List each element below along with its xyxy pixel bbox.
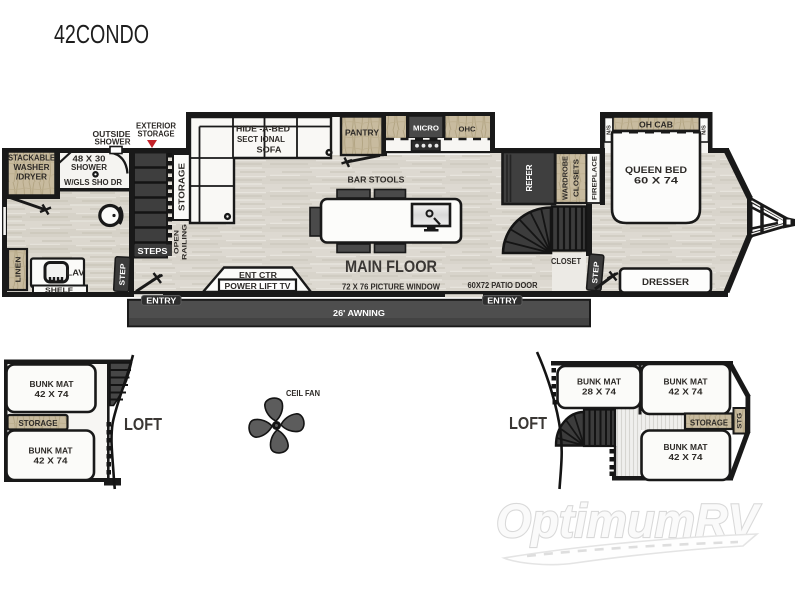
svg-text:28 X 74: 28 X 74	[582, 388, 617, 397]
svg-text:MICRO: MICRO	[413, 124, 439, 133]
svg-text:DRESSER: DRESSER	[642, 277, 689, 288]
svg-text:/DRYER: /DRYER	[16, 173, 47, 182]
svg-text:CLOSET: CLOSET	[551, 257, 581, 266]
svg-text:72 X 76 PICTURE WINDOW: 72 X 76 PICTURE WINDOW	[342, 283, 440, 292]
svg-text:STG: STG	[737, 413, 744, 429]
svg-text:SOFA: SOFA	[257, 145, 282, 155]
svg-text:SECT IONAL: SECT IONAL	[237, 134, 285, 144]
svg-text:REFER: REFER	[525, 164, 534, 191]
svg-text:PANTRY: PANTRY	[345, 128, 379, 138]
svg-text:STEP: STEP	[590, 261, 601, 284]
svg-text:STORAGE: STORAGE	[138, 130, 176, 139]
svg-text:SHOWER: SHOWER	[95, 138, 131, 147]
svg-text:HIDE -A-BED: HIDE -A-BED	[236, 124, 290, 134]
svg-text:BUNK MAT: BUNK MAT	[664, 378, 708, 387]
svg-text:STORAGE: STORAGE	[178, 163, 187, 211]
svg-text:STORAGE: STORAGE	[690, 417, 728, 427]
svg-text:CEIL FAN: CEIL FAN	[286, 388, 320, 398]
svg-text:42 X 74: 42 X 74	[669, 453, 704, 462]
svg-text:LOFT: LOFT	[124, 414, 162, 434]
svg-text:LAV: LAV	[67, 269, 86, 278]
svg-text:60X72 PATIO DOOR: 60X72 PATIO DOOR	[468, 281, 538, 290]
svg-text:42 X 74: 42 X 74	[34, 457, 69, 466]
svg-text:SHOWER: SHOWER	[71, 163, 107, 172]
svg-text:W/GLS SHO DR: W/GLS SHO DR	[64, 178, 122, 187]
svg-text:RAILING: RAILING	[182, 224, 189, 260]
svg-text:N/S: N/S	[702, 125, 708, 135]
svg-text:STORAGE: STORAGE	[19, 418, 58, 428]
svg-text:LOFT: LOFT	[509, 413, 547, 433]
svg-text:OHC: OHC	[459, 125, 477, 134]
svg-text:OPEN: OPEN	[174, 230, 181, 254]
svg-text:42CONDO: 42CONDO	[54, 19, 149, 49]
svg-text:BUNK MAT: BUNK MAT	[577, 378, 621, 387]
svg-text:STACKABLE: STACKABLE	[8, 154, 56, 163]
svg-text:BUNK MAT: BUNK MAT	[664, 443, 708, 452]
svg-text:BUNK MAT: BUNK MAT	[30, 380, 74, 389]
svg-text:42 X 74: 42 X 74	[669, 388, 704, 397]
svg-text:POWER LIFT TV: POWER LIFT TV	[225, 282, 292, 291]
svg-text:QUEEN BED: QUEEN BED	[625, 165, 688, 175]
svg-text:FIREPLACE: FIREPLACE	[592, 155, 599, 200]
svg-text:60 X 74: 60 X 74	[634, 176, 678, 186]
svg-text:ENTRY: ENTRY	[146, 296, 177, 305]
svg-text:OH CAB: OH CAB	[639, 121, 673, 130]
svg-text:SHELF: SHELF	[45, 286, 73, 295]
svg-text:26' AWNING: 26' AWNING	[333, 309, 385, 318]
svg-text:STEPS: STEPS	[138, 247, 169, 256]
svg-text:WASHER: WASHER	[14, 163, 50, 172]
svg-text:42 X 74: 42 X 74	[35, 390, 70, 399]
svg-text:ENTRY: ENTRY	[487, 296, 518, 305]
svg-text:STEP: STEP	[117, 263, 127, 285]
svg-text:WARDROBE: WARDROBE	[561, 156, 570, 200]
svg-text:CLOSETS: CLOSETS	[572, 159, 581, 197]
svg-text:BUNK MAT: BUNK MAT	[29, 447, 73, 456]
svg-text:LINEN: LINEN	[14, 257, 23, 283]
svg-text:MAIN FLOOR: MAIN FLOOR	[345, 258, 437, 276]
svg-text:BAR STOOLS: BAR STOOLS	[348, 175, 405, 185]
